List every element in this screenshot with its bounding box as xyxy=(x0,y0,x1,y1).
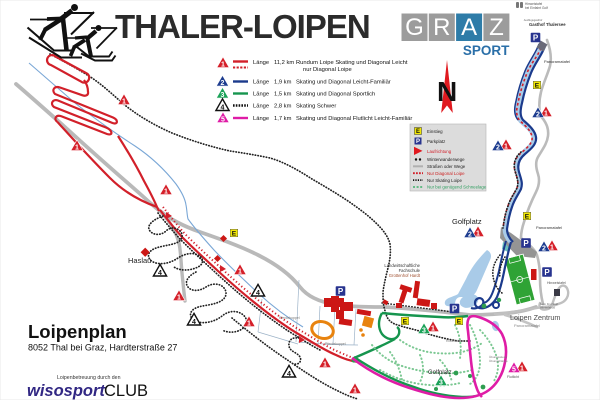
svg-text:8052 Thal bei Graz, Hardterstr: 8052 Thal bei Graz, Hardterstraße 27 xyxy=(28,343,177,353)
svg-text:Winterlabod: Winterlabod xyxy=(540,306,555,310)
svg-text:1,7 km: 1,7 km xyxy=(274,116,292,122)
svg-text:G: G xyxy=(405,14,424,41)
svg-text:R: R xyxy=(433,14,450,41)
svg-text:Rundum Loipe Skating und Diago: Rundum Loipe Skating und Diagonal Leicht xyxy=(296,60,408,66)
svg-text:Pferdekoppel: Pferdekoppel xyxy=(325,342,346,346)
svg-text:Länge: Länge xyxy=(253,104,269,110)
svg-text:Skating und Diagonal Flutlicht: Skating und Diagonal Flutlicht Leicht-Fa… xyxy=(296,116,412,122)
svg-text:Flutlicht: Flutlicht xyxy=(507,375,519,379)
svg-text:Golfplatz: Golfplatz xyxy=(428,370,452,376)
svg-text:Parkplatz: Parkplatz xyxy=(427,139,445,144)
svg-text:Golfplatz: Golfplatz xyxy=(452,217,482,226)
svg-text:Länge: Länge xyxy=(253,92,269,98)
svg-text:Gasthof Thalersee: Gasthof Thalersee xyxy=(529,22,566,27)
svg-text:Länge: Länge xyxy=(253,80,269,86)
svg-text:A: A xyxy=(461,14,477,41)
svg-text:Panoramatafel: Panoramatafel xyxy=(544,59,570,64)
svg-text:Hinweistafel: Hinweistafel xyxy=(547,281,566,285)
svg-text:Rodelwiese: Rodelwiese xyxy=(446,339,464,343)
svg-text:N: N xyxy=(437,76,457,107)
svg-text:nur Diagonal Loipe: nur Diagonal Loipe xyxy=(303,67,352,73)
svg-text:Loipenplan: Loipenplan xyxy=(28,321,127,342)
svg-text:Nur Skating Loipe: Nur Skating Loipe xyxy=(427,178,462,183)
svg-text:Laufrichtung: Laufrichtung xyxy=(427,149,452,154)
svg-text:Nur Diagonal Loipe: Nur Diagonal Loipe xyxy=(427,171,465,176)
svg-text:Winterwanderwege: Winterwanderwege xyxy=(427,157,465,162)
svg-text:wisosport: wisosport xyxy=(27,382,106,400)
svg-text:E: E xyxy=(416,129,420,135)
svg-text:Z: Z xyxy=(489,14,504,41)
svg-text:P: P xyxy=(416,139,420,145)
svg-text:bei Einfahrt Golf: bei Einfahrt Golf xyxy=(525,6,548,10)
svg-text:THALER-LOIPEN: THALER-LOIPEN xyxy=(115,8,370,45)
svg-text:SPORT: SPORT xyxy=(463,43,510,58)
svg-text:Länge: Länge xyxy=(253,60,269,66)
svg-text:Skating und Diagonal Leicht-: Skating und Diagonal Leicht-Familiär xyxy=(296,80,391,86)
svg-text:Haslau: Haslau xyxy=(128,256,151,265)
svg-text:CLUB: CLUB xyxy=(104,382,148,400)
svg-text:Panoramatafel: Panoramatafel xyxy=(536,225,562,230)
svg-text:Nur bei genügend Schneelage: Nur bei genügend Schneelage xyxy=(427,185,487,190)
svg-text:11,2 km: 11,2 km xyxy=(274,60,294,66)
svg-text:Einstieg: Einstieg xyxy=(427,129,443,134)
svg-text:Panoramatafel: Panoramatafel xyxy=(514,323,540,328)
svg-text:Pferdekoppel: Pferdekoppel xyxy=(279,316,300,320)
svg-text:Grottenhof Hardt: Grottenhof Hardt xyxy=(389,273,421,278)
svg-text:Loipen Zentrum: Loipen Zentrum xyxy=(510,313,560,322)
svg-text:2,8 km: 2,8 km xyxy=(274,104,292,110)
svg-text:1,5 km: 1,5 km xyxy=(274,92,292,98)
svg-text:1,9 km: 1,9 km xyxy=(274,80,292,86)
svg-text:Übungshänge: Übungshänge xyxy=(489,359,508,363)
svg-text:Straßen oder Wege: Straßen oder Wege xyxy=(427,164,466,169)
svg-text:Länge: Länge xyxy=(253,116,269,122)
svg-text:Loipenbetreuung durch den: Loipenbetreuung durch den xyxy=(57,375,121,381)
svg-text:Skating Schwer: Skating Schwer xyxy=(296,104,336,110)
svg-text:Skating und Diagonal Sportli: Skating und Diagonal Sportlich xyxy=(296,92,375,98)
